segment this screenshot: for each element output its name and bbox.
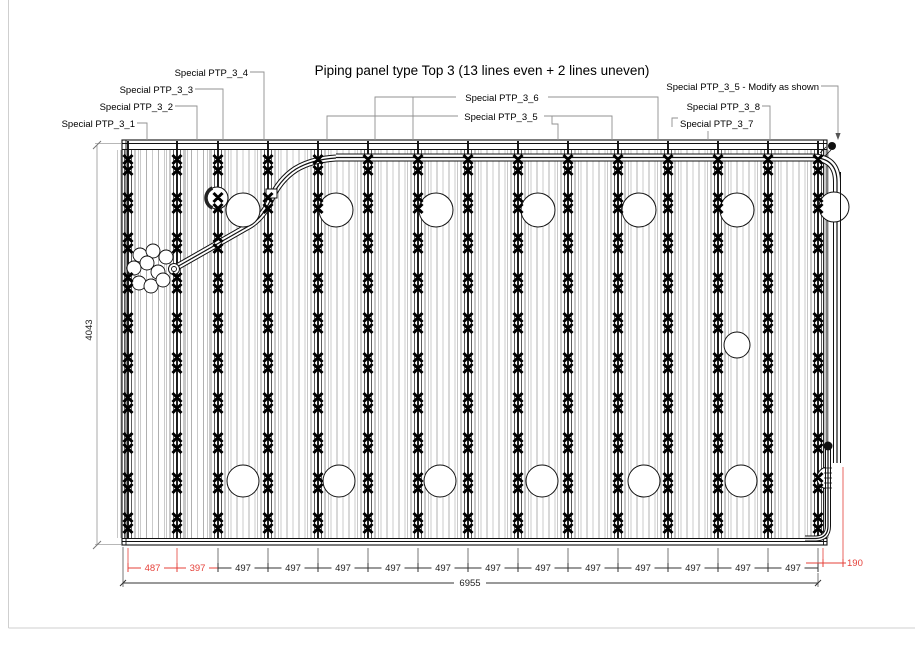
panel-hole <box>725 465 757 497</box>
panel-hole <box>724 332 750 358</box>
panel-hole <box>628 465 660 497</box>
callout-leader <box>821 86 838 134</box>
panel-hole <box>720 193 754 227</box>
dim-value-497: 497 <box>585 563 601 574</box>
callout-leader <box>762 106 770 140</box>
callout-arrowhead <box>835 133 840 140</box>
callout-leader <box>327 116 458 140</box>
dim-right-offset: 190 <box>847 558 863 569</box>
panel-hole <box>226 193 260 227</box>
callout-leader <box>552 116 558 140</box>
piping-panel-drawing: 4873974974974974974974974974974974974974… <box>0 0 915 646</box>
callout-special-ptp-3-8: Special PTP_3_8 <box>687 102 760 113</box>
dim-value-497: 497 <box>485 563 501 574</box>
dim-value-497: 497 <box>785 563 801 574</box>
callout-leader <box>544 116 612 140</box>
callout-special-ptp-3-5-modify: Special PTP_3_5 - Modify as shown <box>666 82 819 93</box>
dim-value-497: 497 <box>535 563 551 574</box>
drawing-title: Piping panel type Top 3 (13 lines even +… <box>315 63 650 78</box>
panel-hole <box>526 465 558 497</box>
dim-value-497: 497 <box>335 563 351 574</box>
drawing-sheet: 4873974974974974974974974974974974974974… <box>0 0 915 646</box>
callout-special-ptp-3-7: Special PTP_3_7 <box>680 119 753 130</box>
dim-value-397: 397 <box>190 563 206 574</box>
dim-value-497: 497 <box>735 563 751 574</box>
panel-hole <box>622 193 656 227</box>
dim-value-497: 497 <box>235 563 251 574</box>
callout-special-ptp-3-6: Special PTP_3_6 <box>465 93 538 104</box>
panel-hole <box>419 193 453 227</box>
dim-total-width: 6955 <box>459 578 480 589</box>
callout-leader <box>548 97 658 140</box>
callout-leader <box>672 118 678 127</box>
cluster-hole <box>159 250 173 264</box>
dim-value-497: 497 <box>435 563 451 574</box>
pipe-end-ball <box>828 142 836 150</box>
callout-leader <box>250 72 264 140</box>
callout-leader <box>375 97 456 140</box>
dim-value-497: 497 <box>385 563 401 574</box>
dim-panel-height: 4043 <box>84 319 95 340</box>
panel-hole <box>227 465 259 497</box>
pipe-end-ball <box>824 442 833 451</box>
callout-special-ptp-3-5: Special PTP_3_5 <box>464 112 537 123</box>
callout-leader <box>137 123 147 140</box>
cluster-hole <box>127 261 141 275</box>
edge-circle <box>819 192 849 222</box>
callout-special-ptp-3-2: Special PTP_3_2 <box>100 102 173 113</box>
callout-special-ptp-3-1: Special PTP_3_1 <box>62 119 135 130</box>
dim-value-487: 487 <box>145 563 161 574</box>
dim-value-497: 497 <box>685 563 701 574</box>
panel-hole <box>521 193 555 227</box>
callout-leader <box>195 89 223 140</box>
callout-leader <box>175 106 197 140</box>
callout-special-ptp-3-4: Special PTP_3_4 <box>175 68 248 79</box>
cluster-hole <box>156 273 170 287</box>
dim-value-497: 497 <box>635 563 651 574</box>
panel-hole <box>319 193 353 227</box>
dim-value-497: 497 <box>285 563 301 574</box>
callout-special-ptp-3-3: Special PTP_3_3 <box>120 85 193 96</box>
panel-hole <box>424 465 456 497</box>
panel-hole <box>323 465 355 497</box>
